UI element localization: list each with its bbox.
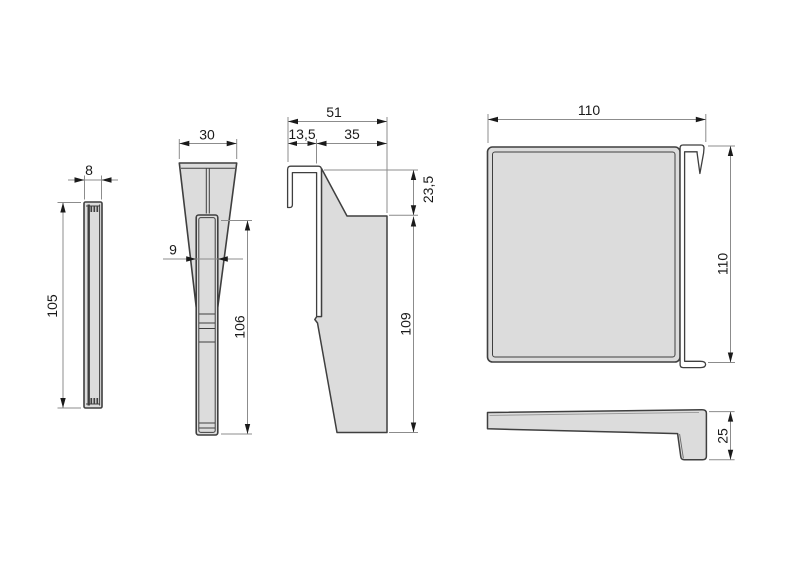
arrowhead (696, 117, 706, 122)
dim-label-110-height: 110 (715, 253, 731, 276)
wedge-stem (196, 215, 218, 435)
bracket-body (315, 169, 387, 433)
arrowhead (728, 412, 733, 422)
arrowhead (227, 141, 237, 146)
view-front-wedge (179, 163, 236, 435)
bracket-hook-plate (288, 166, 322, 316)
dim-profile-width: 8 (68, 162, 118, 200)
arrowhead (728, 353, 733, 363)
dim-label-9: 9 (169, 242, 177, 258)
panel-edge-hook (680, 145, 706, 368)
arrowhead (245, 424, 250, 434)
arrowhead (728, 450, 733, 460)
arrowhead (728, 146, 733, 156)
arrowhead (102, 177, 112, 182)
arrowhead (377, 141, 387, 146)
arrowhead (317, 141, 327, 146)
dim-label-109: 109 (398, 312, 414, 336)
arrowhead (411, 217, 416, 227)
panel-side-body (488, 410, 707, 460)
dim-label-23-5: 23,5 (420, 176, 436, 203)
dim-bracket-body-width: 35 (317, 126, 388, 146)
arrowhead (179, 141, 189, 146)
dim-wedge-top-width: 30 (179, 127, 236, 160)
dim-label-35: 35 (344, 126, 360, 142)
dim-label-106: 106 (232, 315, 248, 339)
dim-bracket-hook-width: 13,5 (288, 126, 317, 164)
arrowhead (488, 117, 498, 122)
arrowhead (288, 119, 298, 124)
arrowhead (245, 221, 250, 231)
arrowhead (411, 170, 416, 180)
arrowhead (411, 423, 416, 433)
view-front-panel (488, 145, 706, 368)
arrowhead (60, 203, 65, 213)
view-side-bracket (288, 166, 387, 432)
dim-panel-width: 110 (488, 102, 706, 143)
panel-face (488, 147, 681, 362)
view-end-profile (84, 202, 102, 408)
dim-label-8: 8 (85, 162, 93, 178)
dim-label-105: 105 (44, 294, 60, 318)
dim-bracket-total-width: 51 (288, 104, 387, 213)
dim-label-25: 25 (715, 428, 731, 444)
dim-panel-edge-height: 25 (709, 412, 735, 460)
dim-bracket-body-height: 109 (389, 217, 418, 433)
dim-label-13-5: 13,5 (288, 126, 315, 142)
arrowhead (60, 398, 65, 408)
arrowhead (411, 205, 416, 215)
dim-panel-height: 110 (708, 146, 735, 363)
dim-profile-height: 105 (44, 203, 81, 409)
arrowhead (75, 177, 85, 182)
view-side-panel (488, 410, 707, 460)
arrowhead (377, 119, 387, 124)
dim-label-30: 30 (199, 127, 215, 143)
dim-label-51: 51 (326, 104, 342, 120)
dim-label-110-width: 110 (578, 102, 601, 118)
technical-drawing: 8 105 30 9 (0, 0, 800, 568)
